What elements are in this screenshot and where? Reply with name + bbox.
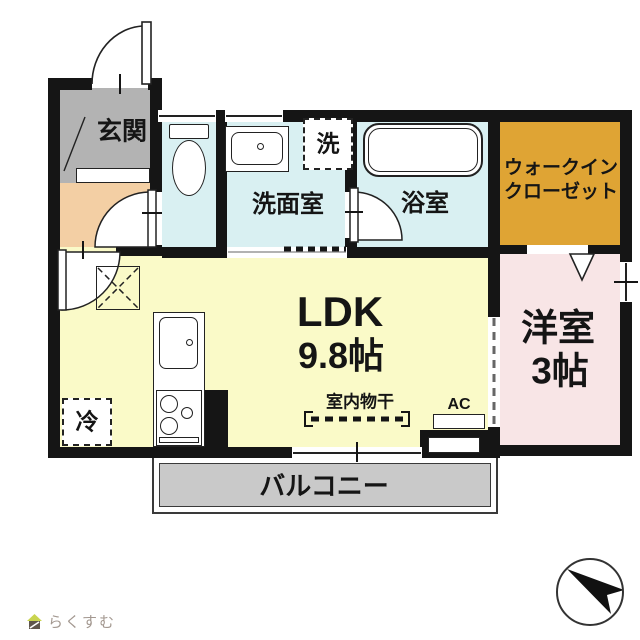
toilet-tank-icon [169, 124, 209, 139]
tick-hall-door [82, 241, 84, 259]
window-toilet [158, 110, 216, 122]
label-laundry: 洗 [317, 133, 340, 156]
wall-hall-bottom [116, 245, 162, 256]
wall-ldk-western-top [488, 252, 500, 317]
label-ldk: LDK [297, 291, 383, 333]
label-balcony: バルコニー [259, 473, 388, 499]
crossed-square-box [96, 266, 140, 310]
label-indoor-drying: 室内物干 [326, 394, 394, 411]
stove-burner-small [181, 407, 193, 419]
opening-wic [527, 245, 588, 254]
ac-unit-box [433, 414, 485, 429]
tick-toilet-door [142, 212, 162, 214]
window-washroom [225, 110, 283, 122]
toilet-bowl-icon [172, 140, 206, 196]
tick-entrance [119, 74, 121, 94]
label-ldk-size: 9.8帖 [298, 338, 384, 374]
wall-western-bottom [488, 445, 632, 456]
wall-kitchen-stub [203, 390, 228, 450]
label-wic-line2: クローゼット [504, 183, 618, 202]
entrance-door [92, 22, 151, 84]
label-western-size: 3帖 [531, 353, 589, 390]
stove-grill [159, 437, 199, 443]
kitchen-faucet-dot [186, 339, 193, 346]
label-fridge: 冷 [76, 411, 99, 434]
logo-house-icon [26, 613, 43, 630]
tick-bath-door [345, 211, 363, 213]
room-hall [60, 183, 150, 247]
stove-burner-1 [160, 395, 178, 413]
label-genkan: 玄関 [97, 120, 147, 145]
wall-genkan-top-left [48, 78, 92, 90]
logo-text: らくすむ [48, 611, 116, 632]
wall-wet-bottom-left [162, 247, 227, 258]
wall-left-outer [48, 78, 60, 458]
rakusumu-logo: らくすむ [26, 611, 116, 632]
wall-bottom-left [48, 447, 298, 458]
wall-genkan-toilet [150, 88, 162, 192]
label-western: 洋室 [521, 310, 595, 347]
wall-top-main [150, 110, 632, 122]
north-arrow-icon [556, 558, 624, 626]
tick-balcony-window [356, 442, 358, 462]
ac-sleeve [428, 437, 480, 453]
label-wic-line1: ウォークイン [504, 159, 618, 178]
label-washroom: 洗面室 [252, 193, 324, 217]
opening-washroom-slide [227, 247, 347, 258]
label-ac: AC [447, 397, 470, 413]
tick-western-window [614, 281, 638, 283]
wall-bath-wic [488, 110, 500, 252]
wall-wet-bottom-right [347, 247, 500, 258]
room-western [500, 252, 620, 445]
floor-plan: 玄関 洗面室 浴室 ウォークイン クローゼット LDK 9.8帖 洋室 3帖 バ… [0, 0, 640, 640]
sink-faucet-dot [257, 143, 264, 150]
label-bathroom: 浴室 [401, 192, 449, 216]
wall-wic-bottom-right [588, 245, 632, 254]
genkan-step [76, 168, 150, 183]
stove-burner-2 [160, 417, 178, 435]
bathtub-inner [368, 128, 478, 172]
